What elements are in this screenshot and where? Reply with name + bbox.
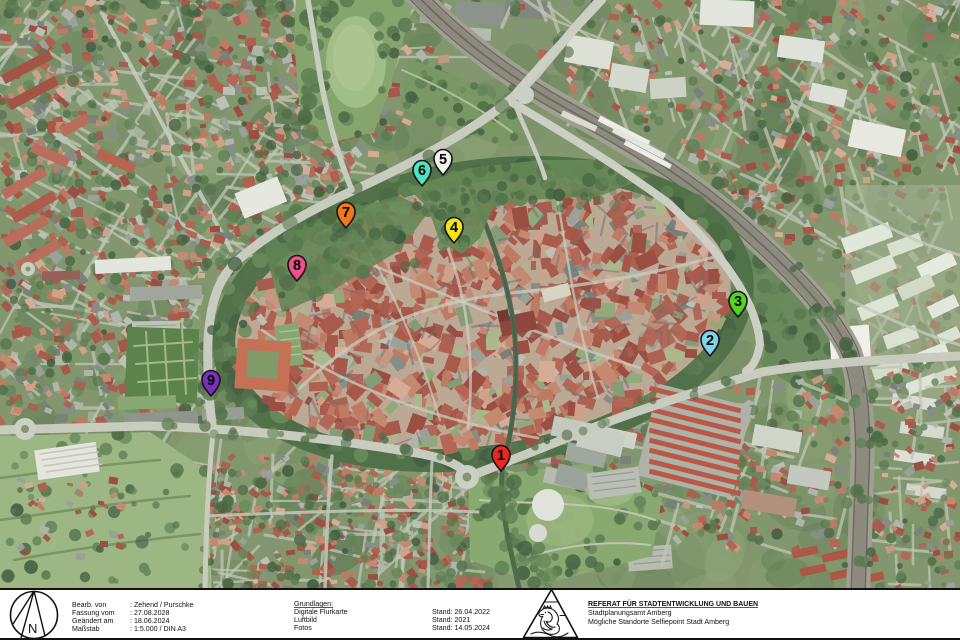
svg-text:7: 7 [342, 205, 350, 221]
svg-text:6: 6 [418, 163, 426, 179]
svg-text:1: 1 [497, 448, 505, 464]
svg-text:9: 9 [207, 373, 215, 389]
svg-text:8: 8 [293, 258, 301, 274]
svg-text:2: 2 [706, 333, 714, 349]
svg-text:4: 4 [450, 220, 458, 236]
svg-text:5: 5 [439, 152, 447, 168]
svg-text:3: 3 [734, 294, 742, 310]
